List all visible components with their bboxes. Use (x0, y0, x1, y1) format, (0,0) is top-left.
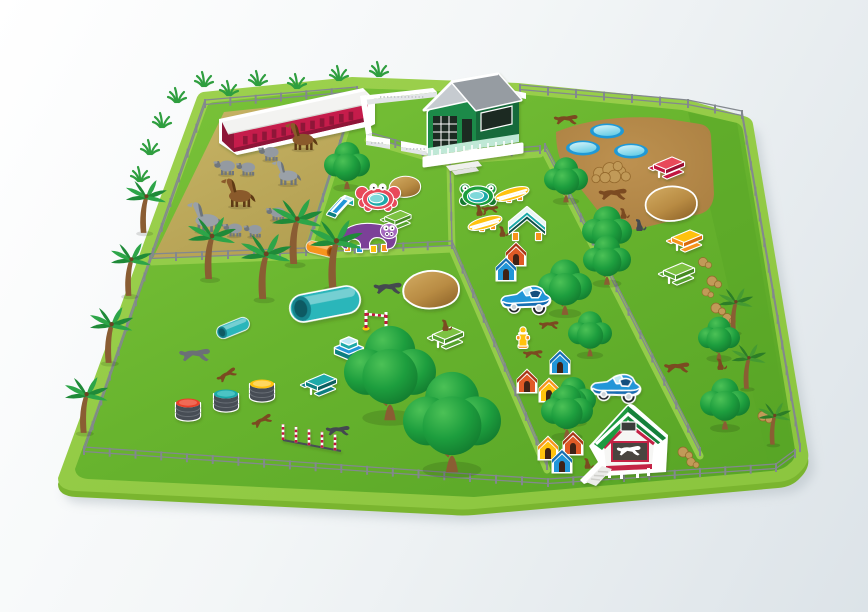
boulder (404, 272, 458, 308)
grass-tuft (141, 140, 159, 154)
boulder (646, 187, 696, 220)
grass-tuft (153, 113, 171, 127)
barrel-platform-red (176, 399, 200, 421)
grass-tuft (330, 66, 348, 80)
grass-tuft (168, 88, 186, 102)
grass-tuft (195, 72, 213, 86)
paddling-pool (590, 124, 624, 139)
frog-paddling-pool (460, 185, 496, 206)
grass-tuft (249, 71, 267, 85)
park-map-illustration (0, 0, 868, 612)
paddling-pool (614, 144, 648, 159)
barrel-platform-teal (214, 390, 238, 412)
grass-tuft (131, 167, 149, 181)
paddling-pool (566, 141, 600, 156)
grass-tuft (370, 62, 388, 76)
illustration-stage (0, 0, 868, 612)
barrel-platform-yellow (250, 380, 274, 402)
crab-paddling-pool (356, 185, 400, 212)
